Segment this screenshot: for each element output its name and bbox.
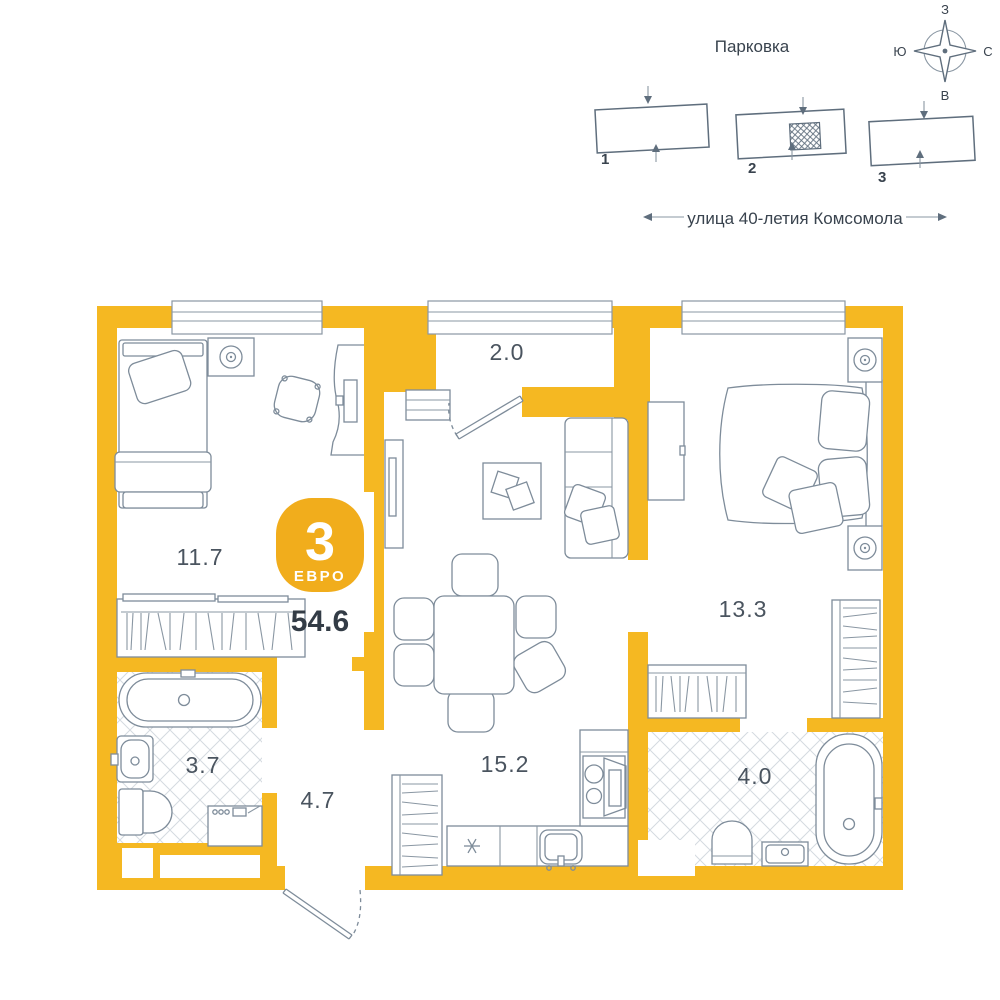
kitchen-counter-right [580, 730, 628, 826]
tv-console [385, 440, 403, 548]
double-bed [720, 378, 882, 535]
window-entry-hall [428, 301, 612, 334]
single-bed [115, 340, 211, 508]
wall-hall-bottom [522, 387, 614, 417]
window-bedroom-left [172, 301, 322, 334]
building-2-label: 2 [748, 160, 756, 177]
corner-sofa [563, 418, 628, 558]
nightstand-lamp-top [848, 338, 882, 382]
toilet-left [119, 789, 172, 835]
parking-building-2: 2 [736, 97, 846, 177]
street-name: улица 40-летия Комсомола [687, 209, 903, 228]
wardrobe-bedroom-right-bottom [648, 665, 746, 718]
sink-right [762, 842, 808, 866]
floorplan-page: З С В Ю Парковка 1 2 [0, 0, 1000, 1000]
wall-bedroomleft-bottom [117, 657, 277, 672]
compass-north: С [983, 44, 992, 59]
wall-niche-1 [122, 848, 153, 878]
badge-type: ЕВРО [294, 568, 346, 585]
wall-block-hall-right [614, 322, 650, 420]
window-bedroom-right [682, 301, 845, 334]
windows [172, 301, 845, 334]
compass-rose: З С В Ю [893, 2, 992, 103]
sink-left [111, 736, 153, 782]
desk-chair [272, 374, 323, 425]
wardrobe-hallway [392, 775, 442, 875]
dining-chair [510, 638, 569, 696]
coffee-table [483, 463, 541, 519]
bathtub-left [119, 670, 261, 727]
nightstand-lamp-bottom [848, 526, 882, 570]
room-label-bedroom-left: 11.7 [176, 544, 223, 570]
wall-bedroomleft-thin [374, 492, 384, 632]
compass-east: В [941, 88, 950, 103]
dining-chair [394, 598, 434, 640]
dining-chair [452, 554, 498, 596]
compass-west: З [941, 2, 949, 17]
street-arrowhead-left [643, 213, 652, 221]
wall-bedroomright-lower [628, 632, 648, 866]
wall-bedroomright-upper [628, 420, 648, 560]
parking-building-3: 3 [869, 101, 975, 186]
room-label-bathroom-right: 4.0 [738, 763, 773, 789]
building-1-arrowhead-down [644, 96, 652, 104]
badge-total-area: 54.6 [291, 605, 349, 638]
wall-bedroomleft-upper [364, 392, 384, 492]
street-label: улица 40-летия Комсомола [643, 209, 947, 228]
building-1-outline [595, 104, 709, 153]
dining-table-set [394, 554, 569, 732]
washing-machine [208, 806, 262, 846]
dining-chair [448, 690, 494, 732]
parking-title: Парковка [715, 37, 790, 56]
street-arrowhead-right [938, 213, 947, 221]
entry-door [283, 889, 361, 939]
room-label-bedroom-right: 13.3 [719, 596, 768, 622]
kitchen-counter [447, 826, 628, 870]
compass-south: Ю [893, 44, 906, 59]
parking-diagram: Парковка 1 2 [595, 37, 975, 186]
kitchen-sink [540, 830, 582, 870]
bathtub-right [816, 734, 882, 864]
building-3-arrowhead-down [920, 111, 928, 119]
dining-table [434, 596, 514, 694]
building-3-label: 3 [878, 169, 886, 186]
wall-bathleft-upper [262, 672, 277, 728]
room-label-hallway: 4.7 [301, 787, 336, 813]
wall-bedroomleft-lower [364, 632, 384, 730]
floor-plan: 2.0 11.7 13.3 3.7 4.7 15.2 4.0 3 ЕВРО 54… [97, 301, 903, 939]
building-2-highlight-hatch [789, 122, 820, 150]
bedside-lamp-table [208, 338, 254, 376]
wall-left [97, 306, 117, 890]
dining-chair [394, 644, 434, 686]
wall-stub-doorway [352, 657, 364, 671]
wardrobe-bedroom-left [117, 594, 305, 657]
wall-niche-3 [638, 840, 695, 876]
room-label-bathroom-left: 3.7 [186, 752, 221, 778]
building-1-label: 1 [601, 151, 609, 168]
wall-bottom-right [365, 866, 903, 890]
room-label-entry-hall: 2.0 [490, 339, 525, 365]
dining-chair [516, 596, 556, 638]
wall-niche-2 [160, 855, 260, 878]
hall-door [449, 396, 523, 439]
hall-cabinet [406, 390, 450, 420]
badge-room-count: 3 [305, 512, 335, 572]
parking-building-1: 1 [595, 86, 709, 168]
wall-bathright-top-left [648, 718, 740, 732]
wardrobe-bedroom-right-side [832, 600, 880, 718]
building-3-outline [869, 116, 975, 165]
toilet-right [712, 821, 752, 864]
floorplan-canvas: З С В Ю Парковка 1 2 [0, 0, 1000, 1000]
wall-shaft-center [364, 318, 436, 392]
compass-center-dot [943, 49, 948, 54]
wall-bathright-top-right [807, 718, 883, 732]
wall-right [883, 306, 903, 890]
desk [331, 345, 364, 455]
wardrobe-bedroom-right-left [648, 402, 685, 500]
room-label-kitchen-living: 15.2 [481, 751, 530, 777]
